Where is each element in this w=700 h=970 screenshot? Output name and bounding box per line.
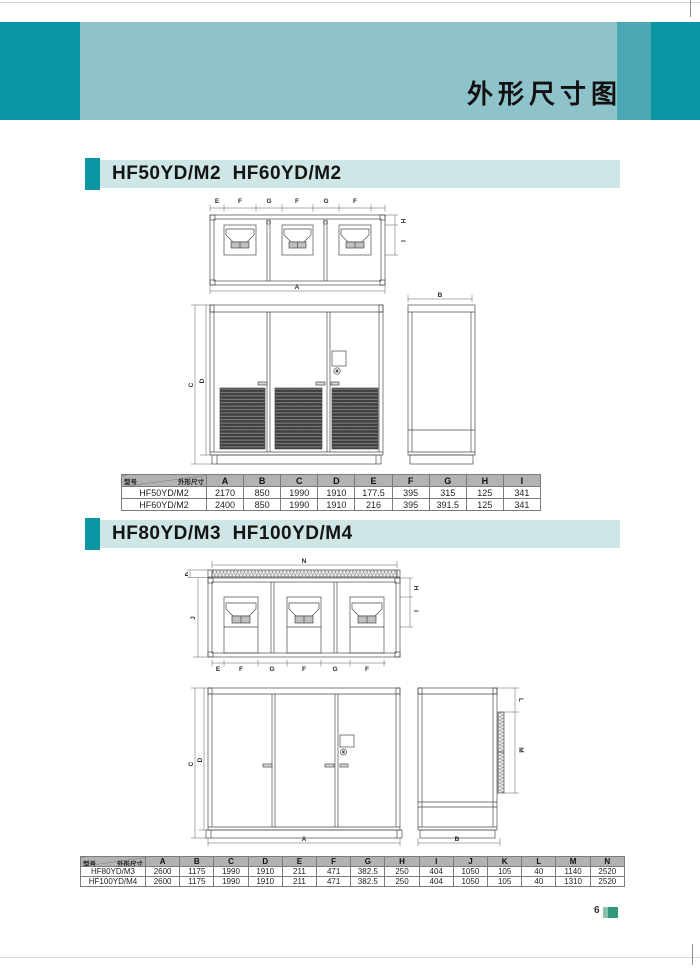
banner-accent-strip [617,22,651,120]
crop-mark-top-right [690,0,691,17]
top-hairline [0,2,700,3]
svg-text:A: A [295,284,300,291]
model-cell: HF50YD/M2 [122,487,207,499]
svg-text:C: C [188,382,195,387]
table-row: HF80YD/M32600117519901910211471382.52504… [81,867,625,877]
svg-text:D: D [199,378,206,383]
column-header-E: E [355,475,392,487]
value-cell: 1910 [248,877,282,887]
svg-text:E: E [216,666,221,673]
value-cell: 341 [503,487,540,499]
s2-fan-modules [224,597,384,653]
column-header-I: I [503,475,540,487]
value-cell: 2400 [207,499,244,511]
value-cell: 315 [429,487,466,499]
svg-text:G: G [269,666,274,673]
value-cell: 1910 [318,487,355,499]
column-header-J: J [453,857,487,867]
svg-text:G: G [323,198,328,205]
value-cell: 395 [392,487,429,499]
value-cell: 216 [355,499,392,511]
value-cell: 850 [244,487,281,499]
value-cell: 395 [392,499,429,511]
value-cell: 1050 [453,867,487,877]
svg-text:F: F [238,198,242,205]
value-cell: 2600 [146,877,180,887]
value-cell: 471 [317,867,351,877]
svg-text:F: F [365,666,369,673]
page-number-badge [603,907,618,918]
s2-front-dim-labels: C D A B L M [188,698,524,843]
column-header-C: C [281,475,318,487]
value-cell: 850 [244,499,281,511]
model-cell: HF60YD/M2 [122,499,207,511]
s2-coil-strip [208,570,400,577]
crop-mark-bottom-right [692,944,693,965]
bottom-hairline [0,957,700,958]
value-cell: 177.5 [355,487,392,499]
svg-text:G: G [266,198,271,205]
s1-top-view-cabinet [210,215,385,285]
s2-front-view [206,688,402,838]
column-header-L: L [522,857,556,867]
value-cell: 2600 [146,867,180,877]
svg-text:F: F [239,666,243,673]
catalog-page: 外形尺寸图 HF50YD/M2 HF60YD/M2 [0,0,700,970]
value-cell: 471 [317,877,351,887]
s1-control-panel [332,351,346,374]
value-cell: 1990 [281,487,318,499]
value-cell: 211 [282,877,316,887]
value-cell: 1990 [214,877,248,887]
value-cell: 1910 [248,867,282,877]
value-cell: 404 [419,867,453,877]
value-cell: 1310 [556,877,590,887]
section2-heading: HF80YD/M3 HF100YD/M4 [85,523,353,545]
s1-front-side-drawing: C D [185,300,485,470]
value-cell: 382.5 [351,867,385,877]
column-header-K: K [488,857,522,867]
section1-accent-square [85,158,100,190]
value-cell: 2520 [590,877,624,887]
page-banner: 外形尺寸图 [0,22,700,120]
svg-text:N: N [302,558,307,565]
svg-text:L: L [517,698,524,702]
section1-heading: HF50YD/M2 HF60YD/M2 [85,163,342,185]
s1-side-view [408,305,475,464]
s2-top-view-drawing: N K J H I E F G F G F [185,558,525,673]
s1-fan-modules [224,225,371,255]
value-cell: 105 [488,867,522,877]
banner-left-block [0,22,80,120]
section2-dimension-table: 型号外形尺寸ABCDEFGHIJKLMNHF80YD/M326001175199… [80,856,625,887]
column-header-D: D [318,475,355,487]
svg-text:F: F [353,198,357,205]
value-cell: 1990 [214,867,248,877]
svg-text:B: B [438,292,443,299]
section1-heading-bar: HF50YD/M2 HF60YD/M2 [85,160,620,188]
column-header-B: B [180,857,214,867]
table-row: HF100YD/M42600117519901910211471382.5250… [81,877,625,887]
column-header-G: G [429,475,466,487]
value-cell: 40 [522,867,556,877]
column-header-H: H [385,857,419,867]
svg-text:I: I [412,610,419,612]
value-cell: 1140 [556,867,590,877]
value-cell: 2170 [207,487,244,499]
page-number: 6 [594,905,600,916]
column-header-A: A [146,857,180,867]
value-cell: 105 [488,877,522,887]
column-header-I: I [419,857,453,867]
corner-row-label: 型号 [83,858,96,867]
page-title: 外形尺寸图 [467,74,622,111]
value-cell: 1050 [453,877,487,887]
svg-text:J: J [190,616,197,620]
value-cell: 341 [503,499,540,511]
column-header-G: G [351,857,385,867]
svg-text:G: G [332,666,337,673]
s2-front-dimension-lines [191,688,519,846]
corner-col-label: 外形尺寸 [178,476,204,486]
svg-text:I: I [399,240,406,242]
column-header-D: D [248,857,282,867]
column-header-B: B [244,475,281,487]
column-header-F: F [392,475,429,487]
value-cell: 1175 [180,877,214,887]
value-cell: 211 [282,867,316,877]
banner-right-block [651,22,700,120]
section2-heading-bar: HF80YD/M3 HF100YD/M4 [85,520,620,548]
value-cell: 125 [466,487,503,499]
svg-text:F: F [295,198,299,205]
value-cell: 391.5 [429,499,466,511]
model-cell: HF100YD/M4 [81,877,146,887]
s1-dim-labels: E F G F G F H I A B [215,198,443,299]
s2-control-panel [340,735,354,755]
column-header-N: N [590,857,624,867]
corner-row-label: 型号 [124,476,137,486]
table-corner-cell: 型号外形尺寸 [81,857,146,867]
svg-text:C: C [188,761,195,766]
column-header-H: H [466,475,503,487]
table-row: HF60YD/M2240085019901910216395391.512534… [122,499,541,511]
dimension-table: 型号外形尺寸ABCDEFGHIJKLMNHF80YD/M326001175199… [80,856,625,887]
value-cell: 250 [385,867,419,877]
value-cell: 40 [522,877,556,887]
s1-top-view-drawing: E F G F G F H I A B [185,198,485,304]
svg-text:B: B [455,836,460,843]
value-cell: 2520 [590,867,624,877]
svg-text:M: M [517,747,524,752]
column-header-F: F [317,857,351,867]
svg-text:A: A [302,836,307,843]
value-cell: 250 [385,877,419,887]
s1-air-grilles [220,388,378,449]
s2-front-side-drawing: C D A B L M [185,680,525,850]
corner-col-label: 外形尺寸 [117,858,143,867]
column-header-A: A [207,475,244,487]
svg-text:F: F [302,666,306,673]
table-row: HF50YD/M2217085019901910177.539531512534… [122,487,541,499]
svg-text:E: E [215,198,220,205]
model-cell: HF80YD/M3 [81,867,146,877]
column-header-M: M [556,857,590,867]
value-cell: 404 [419,877,453,887]
value-cell: 1990 [281,499,318,511]
value-cell: 125 [466,499,503,511]
value-cell: 1175 [180,867,214,877]
value-cell: 382.5 [351,877,385,887]
s2-side-view [418,688,504,838]
svg-text:H: H [412,586,419,591]
value-cell: 1910 [318,499,355,511]
column-header-E: E [282,857,316,867]
svg-text:D: D [197,757,204,762]
section2-accent-square [85,518,100,550]
section1-dimension-table: 型号外形尺寸ABCDEFGHIHF50YD/M22170850199019101… [121,474,541,511]
svg-text:K: K [185,571,190,576]
s1-front-dim-labels: C D [188,378,206,387]
svg-text:H: H [399,219,406,224]
table-corner-cell: 型号外形尺寸 [122,475,207,487]
column-header-C: C [214,857,248,867]
dimension-table: 型号外形尺寸ABCDEFGHIHF50YD/M22170850199019101… [121,474,541,511]
